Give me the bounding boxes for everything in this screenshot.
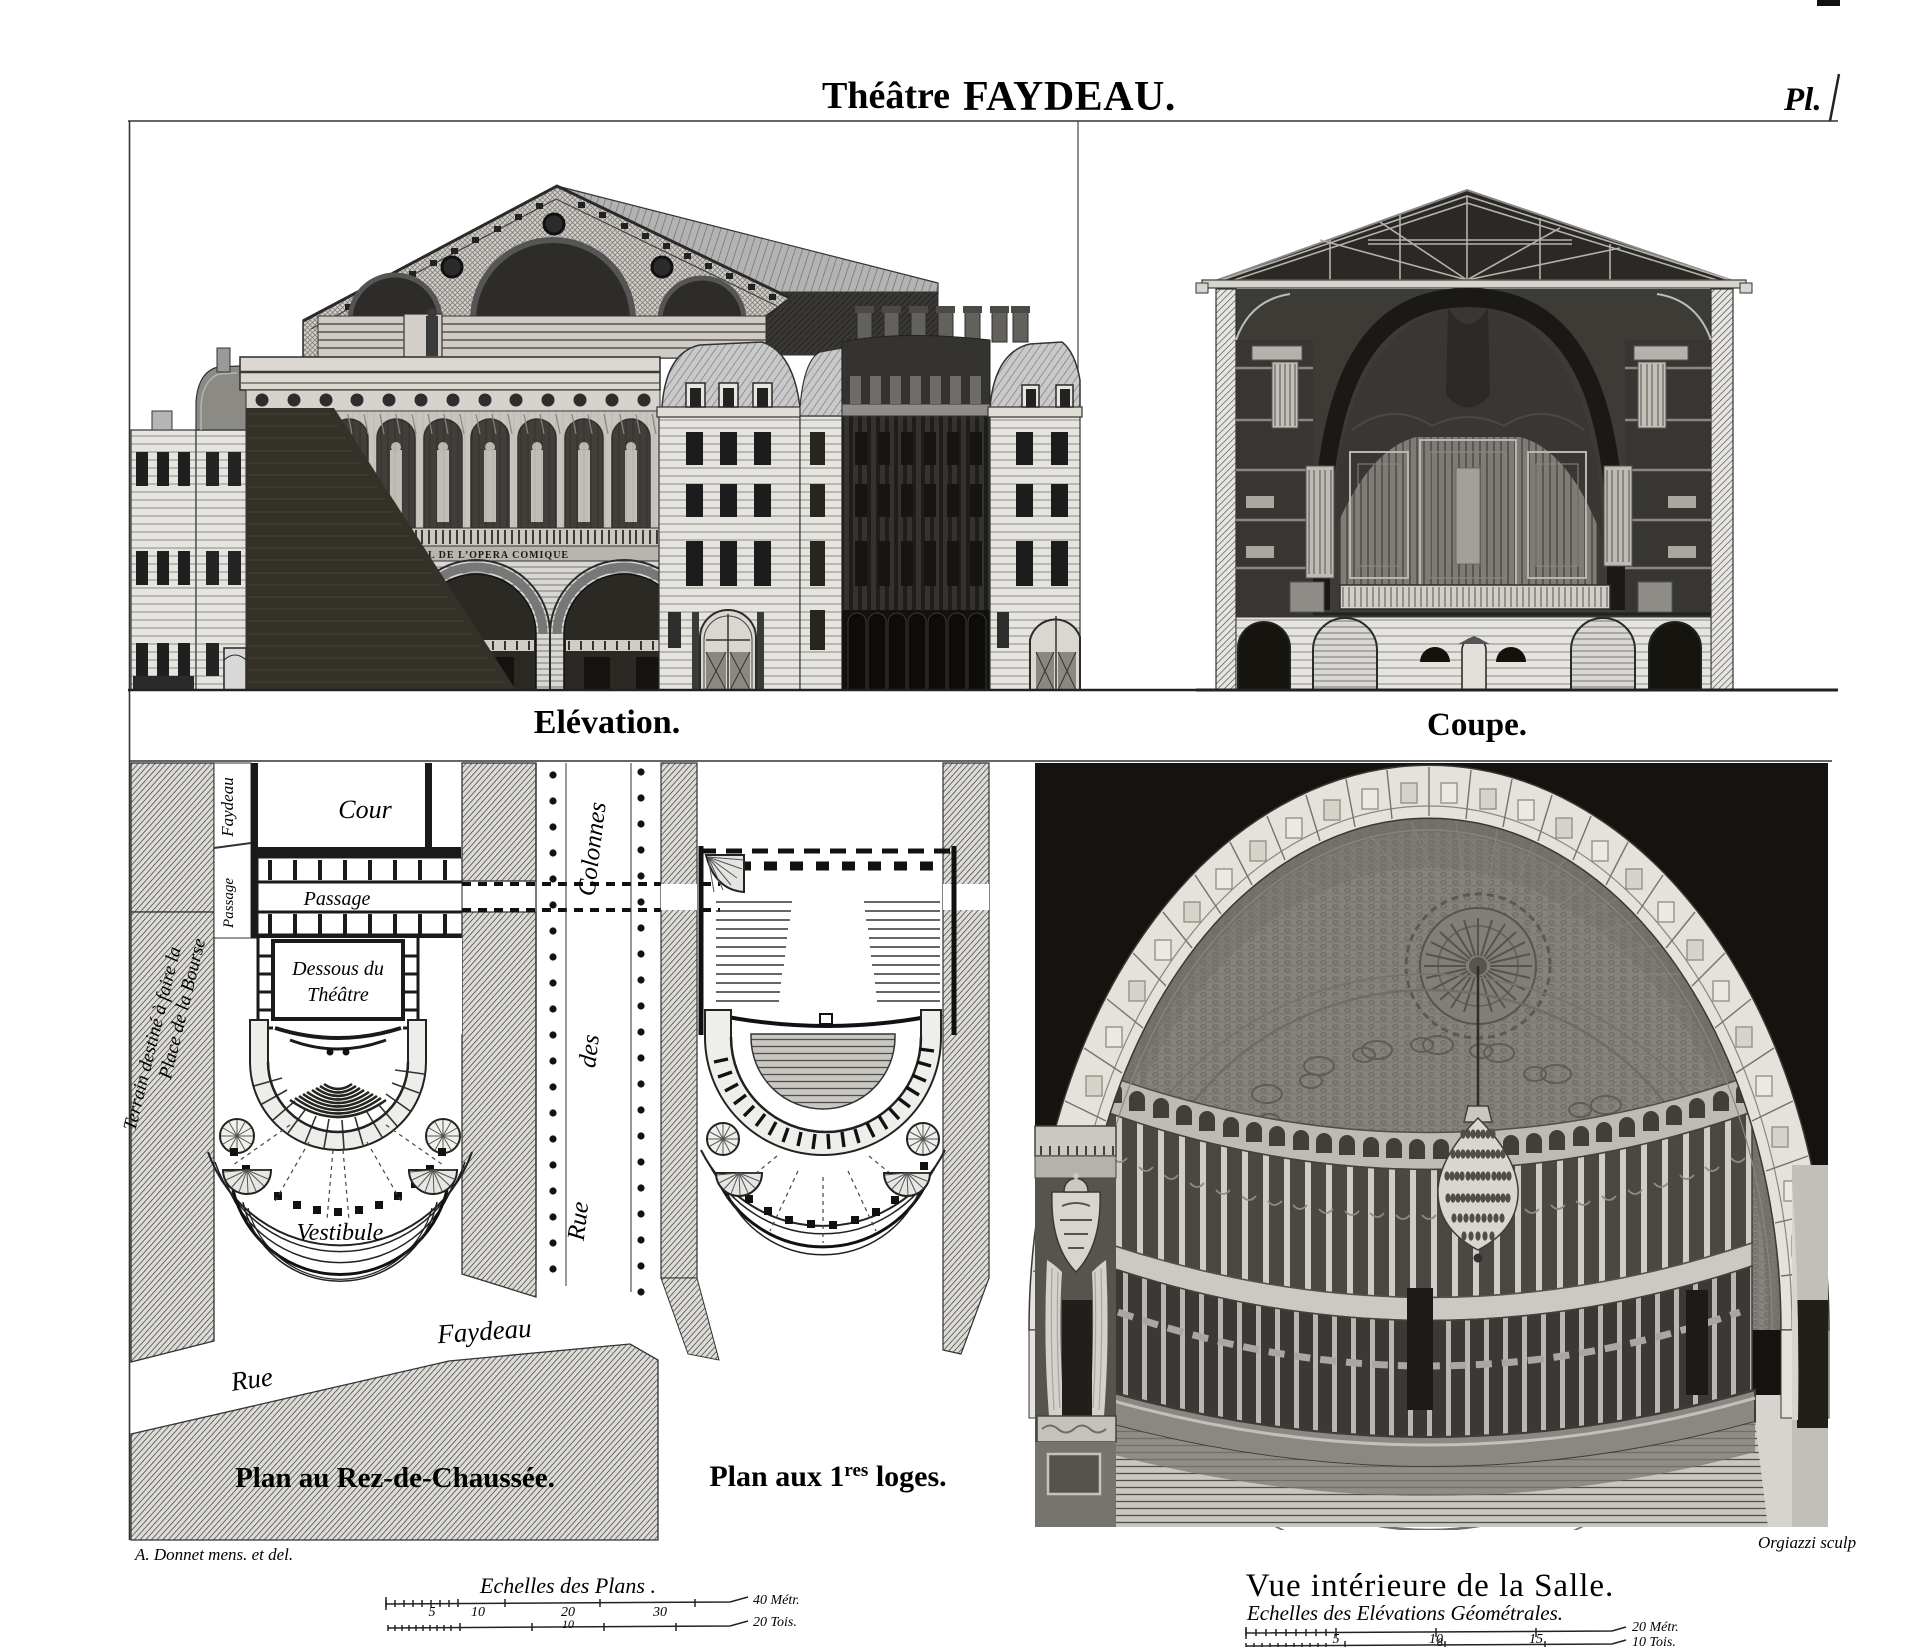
svg-text:5: 5: [1333, 1632, 1340, 1647]
svg-text:Théâtre: Théâtre: [307, 984, 369, 1006]
svg-text:Plan aux 1res loges.: Plan aux 1res loges.: [709, 1460, 946, 1493]
svg-text:Cour: Cour: [338, 795, 392, 824]
svg-text:FAYDEAU.: FAYDEAU.: [963, 74, 1176, 120]
svg-text:Rue: Rue: [228, 1361, 275, 1397]
svg-text:Orgiazzi sculp: Orgiazzi sculp: [1758, 1533, 1856, 1552]
svg-text:des: des: [574, 1033, 605, 1069]
svg-text:Coupe.: Coupe.: [1427, 707, 1527, 743]
svg-text:Faydeau: Faydeau: [218, 777, 237, 837]
svg-text:Passage: Passage: [221, 878, 237, 929]
svg-text:8: 8: [1437, 1635, 1443, 1647]
svg-text:Théâtre: Théâtre: [822, 75, 950, 117]
svg-text:15: 15: [1529, 1632, 1543, 1647]
svg-text:10 Tois.: 10 Tois.: [1632, 1635, 1676, 1647]
svg-text:Pl.: Pl.: [1783, 82, 1822, 118]
svg-text:A. Donnet mens. et del.: A. Donnet mens. et del.: [134, 1545, 293, 1564]
svg-text:Plan au Rez-de-Chaussée.: Plan au Rez-de-Chaussée.: [235, 1462, 555, 1494]
svg-text:Echelles des Plans .: Echelles des Plans .: [479, 1573, 656, 1598]
svg-text:Vue intérieure de la Salle.: Vue intérieure de la Salle.: [1246, 1568, 1615, 1604]
svg-text:10: 10: [471, 1605, 485, 1620]
svg-text:20 Métr.: 20 Métr.: [1632, 1620, 1679, 1635]
svg-text:40 Métr.: 40 Métr.: [753, 1593, 800, 1608]
svg-text:Rue: Rue: [563, 1200, 595, 1243]
svg-text:Dessous du: Dessous du: [291, 958, 384, 980]
svg-text:Echelles des Elévations Géomét: Echelles des Elévations Géométrales.: [1246, 1601, 1563, 1625]
svg-text:30: 30: [652, 1605, 667, 1620]
svg-text:Passage: Passage: [303, 888, 371, 910]
svg-text:10: 10: [562, 1617, 574, 1631]
svg-text:5: 5: [429, 1605, 436, 1620]
svg-text:Elévation.: Elévation.: [534, 704, 680, 741]
svg-text:20 Tois.: 20 Tois.: [753, 1615, 797, 1630]
svg-text:Vestibule: Vestibule: [297, 1220, 384, 1246]
